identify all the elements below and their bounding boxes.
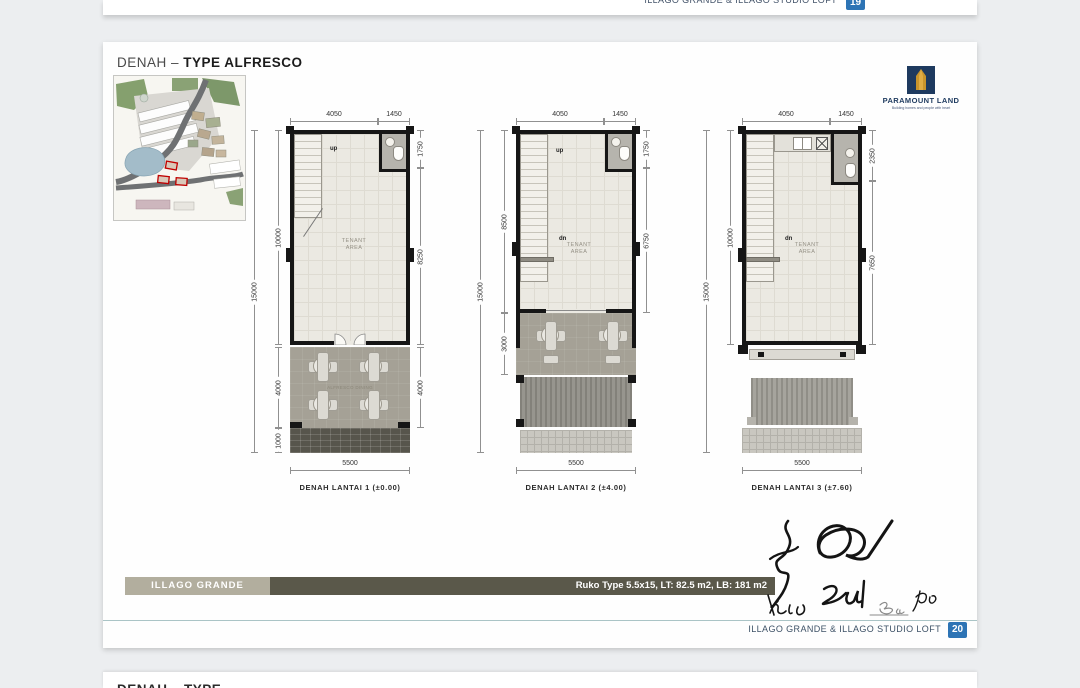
next-page-title-peek: DENAH – TYPE xyxy=(117,682,221,688)
bench xyxy=(605,355,621,364)
dim-bottom: 5500 xyxy=(742,470,862,471)
dining-table xyxy=(313,395,331,413)
column xyxy=(738,248,746,262)
dining-table xyxy=(364,395,382,413)
plan-2-label: DENAH LANTAI 2 (±4.00) xyxy=(496,483,656,492)
site-map-illustration xyxy=(114,76,245,220)
dim-top: 4050 xyxy=(290,121,378,122)
dim-right: 1750 xyxy=(646,130,647,168)
bathroom xyxy=(831,134,858,185)
footer-title: ILLAGO GRANDE & ILLAGO STUDIO LOFT xyxy=(748,624,941,634)
dim-top: 1450 xyxy=(378,121,410,122)
deck-canopy xyxy=(520,377,632,427)
toilet-icon xyxy=(393,146,404,161)
dim-right: 7650 xyxy=(872,181,873,345)
site-map-thumbnail xyxy=(113,75,246,221)
previous-page-footer: ILLAGO GRANDE & ILLAGO STUDIO LOFT xyxy=(644,0,837,5)
column xyxy=(406,248,414,262)
dim-left: 4000 xyxy=(278,347,279,428)
dim-overall: 15000 xyxy=(706,130,707,453)
previous-page-strip: ILLAGO GRANDE & ILLAGO STUDIO LOFT 19 xyxy=(103,0,977,15)
previous-page-number-badge: 19 xyxy=(846,0,865,10)
brand-tagline: Building homes and people with heart xyxy=(881,106,961,110)
balcony-ledge xyxy=(749,349,855,360)
staircase xyxy=(294,134,322,218)
front-paving-strip xyxy=(520,430,632,453)
brand-logo: PARAMOUNT LAND Building homes and people… xyxy=(881,66,961,110)
dim-right: 1750 xyxy=(420,130,421,168)
dim-top: 1450 xyxy=(604,121,636,122)
dim-left: 3000 xyxy=(504,313,505,375)
dim-overall: 15000 xyxy=(254,130,255,453)
main-page: DENAH – TYPE ALFRESCO xyxy=(103,42,977,648)
column xyxy=(632,242,640,256)
column xyxy=(516,419,524,427)
alfresco-dining-area: ALFRESCO DINING xyxy=(290,347,410,428)
balcony-terrace xyxy=(516,313,636,375)
footer-divider xyxy=(103,620,977,621)
sink-icon xyxy=(845,148,855,158)
column xyxy=(406,126,414,134)
dining-table xyxy=(313,357,331,375)
building-outline: up dn TENANT AREA xyxy=(516,130,636,313)
sink-icon xyxy=(385,137,395,147)
dining-table xyxy=(603,326,621,344)
column xyxy=(858,248,866,262)
stair-landing xyxy=(746,257,780,262)
wall xyxy=(290,341,334,345)
column xyxy=(628,419,636,427)
building-outline: dn TENANT AREA xyxy=(742,130,862,345)
dim-left: 10000 xyxy=(278,130,279,345)
wall xyxy=(366,341,410,345)
column xyxy=(628,375,636,383)
column xyxy=(758,352,764,357)
page-title: DENAH – TYPE ALFRESCO xyxy=(117,55,303,70)
dim-top: 4050 xyxy=(742,121,830,122)
dim-top: 4050 xyxy=(516,121,604,122)
wall xyxy=(516,313,520,348)
tenant-area-label: TENANT AREA xyxy=(549,242,609,257)
building-outline: up TENANT AREA xyxy=(290,130,410,345)
column xyxy=(738,126,746,134)
dim-right: 2350 xyxy=(872,130,873,181)
stove-icon xyxy=(816,137,828,150)
sink-icon xyxy=(611,137,621,147)
roof-canopy xyxy=(751,378,853,425)
column xyxy=(747,417,756,425)
bathroom xyxy=(379,134,406,172)
column xyxy=(858,126,866,134)
front-paving-strip xyxy=(742,428,862,453)
signatures xyxy=(758,507,953,619)
alfresco-dining-label: ALFRESCO DINING xyxy=(290,385,410,390)
column xyxy=(512,126,520,134)
stair-direction-label: up xyxy=(330,146,337,152)
dim-bottom: 5500 xyxy=(516,470,636,471)
column xyxy=(840,352,846,357)
page-title-prefix: DENAH – xyxy=(117,55,179,70)
dim-bottom: 5500 xyxy=(290,470,410,471)
column xyxy=(286,126,294,134)
dim-right: 8250 xyxy=(420,168,421,345)
column xyxy=(738,345,748,354)
wall xyxy=(742,341,862,345)
dim-right: 6750 xyxy=(646,168,647,313)
page-number-badge: 20 xyxy=(948,622,967,638)
project-name-bar: ILLAGO GRANDE xyxy=(125,577,270,595)
dim-left: 1000 xyxy=(278,428,279,453)
page-title-type: TYPE ALFRESCO xyxy=(183,55,302,70)
plan-3-label: DENAH LANTAI 3 (±7.60) xyxy=(722,483,882,492)
dining-table xyxy=(364,357,382,375)
dim-overall: 15000 xyxy=(480,130,481,453)
toilet-icon xyxy=(619,146,630,161)
sink-icon xyxy=(802,137,812,150)
stair-direction-label: up xyxy=(556,148,563,154)
dining-table xyxy=(541,326,559,344)
unit-spec-bar: Ruko Type 5.5x15, LT: 82.5 m2, LB: 181 m… xyxy=(270,577,775,595)
column xyxy=(856,345,866,354)
dim-left: 10000 xyxy=(730,130,731,345)
column xyxy=(849,417,858,425)
column xyxy=(632,126,640,134)
dim-right: 4000 xyxy=(420,347,421,428)
entry-door-arcs xyxy=(334,333,366,345)
plan-1-label: DENAH LANTAI 1 (±0.00) xyxy=(270,483,430,492)
brochure-page-view: ILLAGO GRANDE & ILLAGO STUDIO LOFT 19 DE… xyxy=(0,0,1080,688)
column xyxy=(286,248,294,262)
toilet-icon xyxy=(845,163,856,178)
bathroom xyxy=(605,134,632,172)
dim-left: 8500 xyxy=(504,130,505,313)
paramount-land-icon xyxy=(907,66,935,94)
sliding-door xyxy=(546,310,606,311)
front-paving-strip xyxy=(290,428,410,453)
column xyxy=(516,375,524,383)
brand-name: PARAMOUNT LAND xyxy=(881,96,961,105)
wall xyxy=(632,313,636,348)
stair-landing xyxy=(520,257,554,262)
dim-top: 1450 xyxy=(830,121,862,122)
pantry-counter xyxy=(774,134,831,152)
tenant-area-label: TENANT AREA xyxy=(324,238,384,253)
next-page-strip: DENAH – TYPE xyxy=(103,672,977,688)
bench xyxy=(543,355,559,364)
column xyxy=(512,242,520,256)
tenant-area-label: TENANT AREA xyxy=(777,242,837,257)
